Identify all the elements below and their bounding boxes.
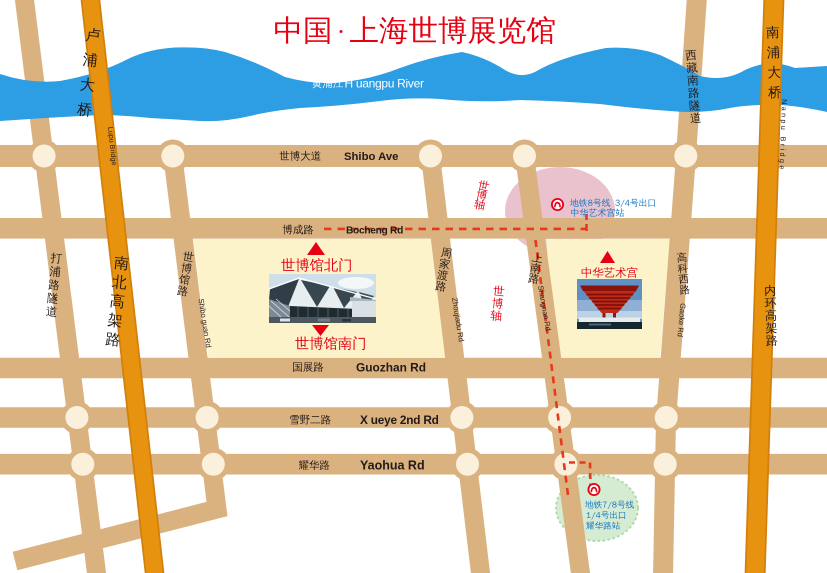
- svg-text:Bocheng Rd: Bocheng Rd: [346, 226, 403, 237]
- svg-text:Shibo Ave: Shibo Ave: [344, 151, 398, 163]
- svg-text:X ueye 2nd Rd: X ueye 2nd Rd: [360, 413, 439, 427]
- svg-text:Yaohua Rd: Yaohua Rd: [360, 458, 425, 472]
- svg-text:Guozhan Rd: Guozhan Rd: [356, 360, 426, 374]
- svg-text:H uangpu River: H uangpu River: [345, 76, 424, 90]
